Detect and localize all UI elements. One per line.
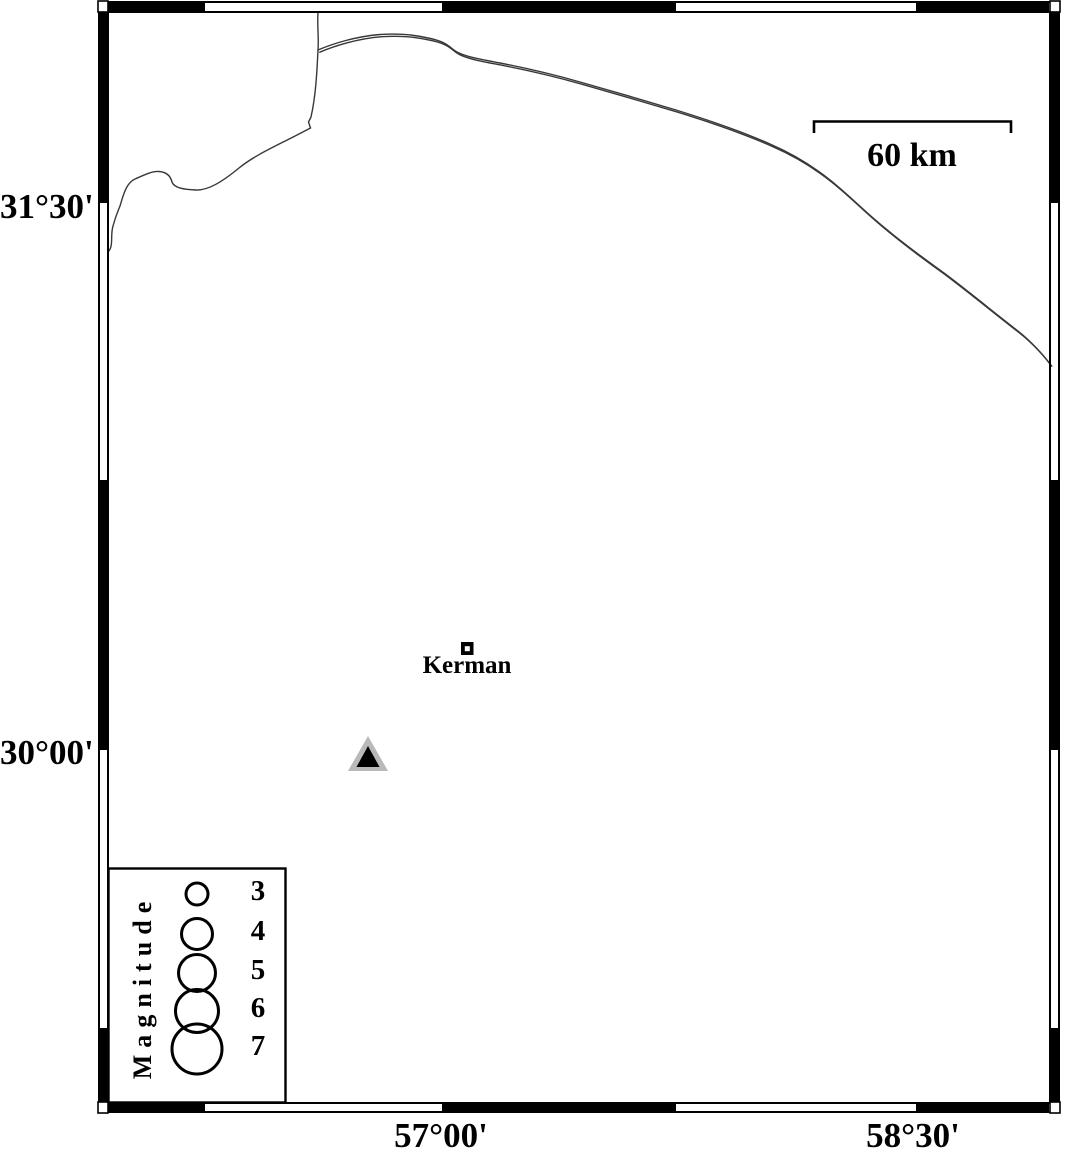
map-page: 31°30' 30°00' 57°00' 58°30' 60 km Kerman… — [0, 0, 1066, 1151]
legend-value-7: 7 — [236, 1032, 280, 1061]
river-line — [309, 13, 319, 128]
scale-bar — [814, 122, 1011, 134]
legend-value-5: 5 — [236, 956, 280, 985]
legend-title: Magnitude — [130, 895, 156, 1080]
lat-label-30-00: 30°00' — [0, 735, 88, 770]
lon-label-58-30: 58°30' — [813, 1118, 1013, 1151]
legend-value-4: 4 — [236, 917, 280, 946]
northeast-coastline — [318, 34, 1052, 366]
station-marker — [348, 736, 388, 771]
lon-label-57-00: 57°00' — [341, 1118, 541, 1151]
legend-value-6: 6 — [236, 994, 280, 1023]
scale-bar-label: 60 km — [812, 139, 1012, 173]
west-border-line — [108, 128, 311, 252]
lat-label-31-30: 31°30' — [0, 189, 88, 224]
legend-value-3: 3 — [236, 877, 280, 906]
city-label-kerman: Kerman — [387, 653, 547, 678]
